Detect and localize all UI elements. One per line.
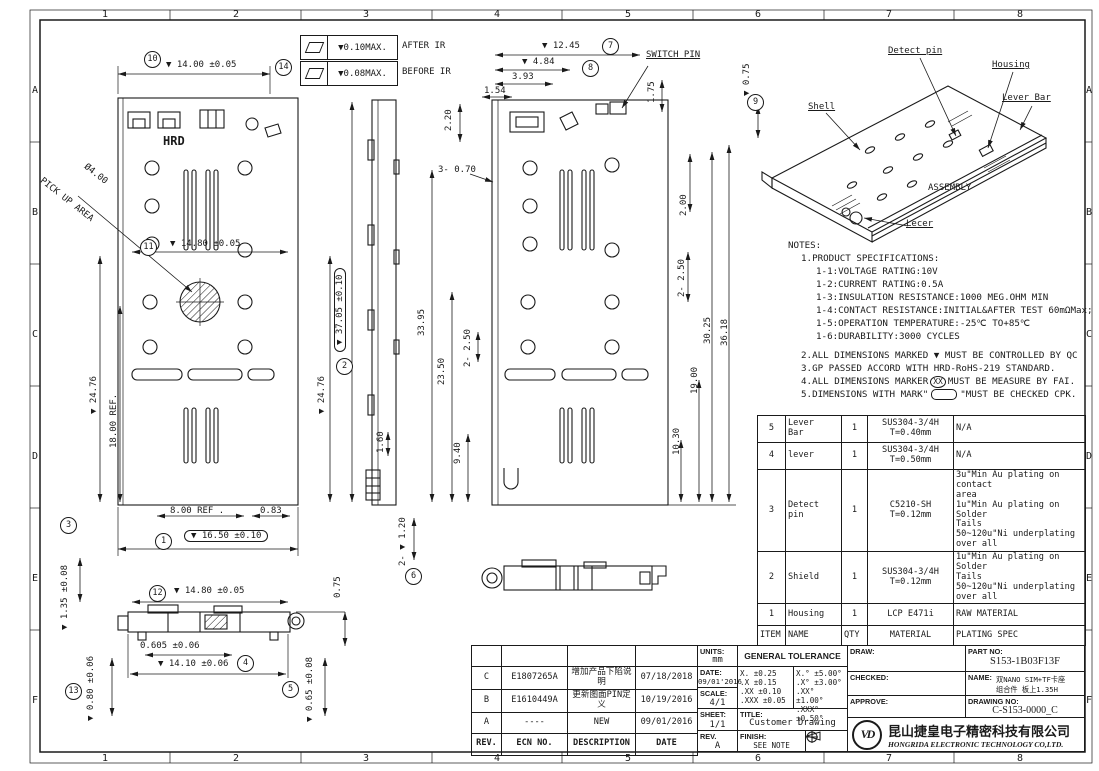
table-row: 2 Shield 1 SUS304-3/4H T=0.12mm 1u"Min A… xyxy=(758,552,1086,604)
qty-cell: 1 xyxy=(842,604,868,626)
dim-30-25: 30.25 xyxy=(703,317,713,344)
dim-2-2-50-left: 2- 2.50 xyxy=(463,329,473,367)
ecn-cell: E1610449A xyxy=(502,689,568,712)
dim-19-00: 19.00 xyxy=(690,367,700,394)
item-cell: 4 xyxy=(758,443,786,470)
balloon-3: 3 xyxy=(60,517,77,534)
header-cell: DATE xyxy=(636,733,698,755)
company-name-en: HONGRIDA ELECTRONIC TECHNOLOGY CO,LTD. xyxy=(888,740,1070,749)
units-value: mm xyxy=(698,655,737,665)
col-label: 1 xyxy=(102,754,108,764)
dim-1-60: 1.60 xyxy=(376,431,386,453)
note-line: 1-6:DURABILITY:3000 CYCLES xyxy=(816,331,960,342)
company-logo: VD xyxy=(852,720,882,750)
desc-cell: 更新图面PIN定义 xyxy=(568,689,636,712)
circled-xx: XX xyxy=(930,376,946,388)
assembly-caption: ASSEMBLY xyxy=(928,183,971,193)
dim-18-00-ref: 18.00 REF. xyxy=(109,394,119,448)
row-label: E xyxy=(1086,574,1092,584)
table-row: 1 Housing 1 LCP E471i RAW MATERIAL xyxy=(758,604,1086,626)
checked-label: CHECKED: xyxy=(850,673,889,682)
parallelism-icon xyxy=(301,36,328,59)
parts-table: 5 Lever Bar 1 SUS304-3/4H T=0.40mm N/A 4… xyxy=(757,415,1086,646)
sheet-label: SHEET: xyxy=(700,710,726,719)
dim-8-00-ref: 8.00 REF . xyxy=(170,506,224,516)
note5-prefix: 5.DIMENSIONS WITH MARK" xyxy=(801,389,928,400)
dim-1-75: 1.75 xyxy=(647,81,657,103)
note-line: 1-2:CURRENT RATING:0.5A xyxy=(816,279,943,290)
side-view xyxy=(118,605,304,640)
top-view xyxy=(118,98,298,505)
qty-cell: 1 xyxy=(842,552,868,604)
date-cell: 10/19/2016 xyxy=(636,689,698,712)
table-row: 4 lever 1 SUS304-3/4H T=0.50mm N/A xyxy=(758,443,1086,470)
dim-10-30: 10.30 xyxy=(672,428,682,455)
shell-label: Shell xyxy=(808,102,835,112)
title-block: UNITS: mm DATE: 09/01'2016 SCALE: 4/1 SH… xyxy=(697,645,1085,752)
row-label: D xyxy=(32,452,38,462)
dim-36-18: 36.18 xyxy=(720,319,730,346)
general-tolerance-header: GENERAL TOLERANCE xyxy=(737,645,848,667)
housing-label: Housing xyxy=(992,60,1030,70)
flatness-callout-after: ▼0.10MAX. xyxy=(300,35,398,60)
note4-suffix: MUST BE MEASURE BY FAI. xyxy=(948,376,1075,387)
material-cell: LCP E471i xyxy=(868,604,954,626)
balloon-4: 4 xyxy=(237,655,254,672)
balloon-6: 6 xyxy=(405,568,422,585)
dim-16-50: ▼ 16.50 ±0.10 xyxy=(184,530,268,542)
date-cell: 07/18/2018 xyxy=(636,667,698,690)
note-line: 1-3:INSULATION RESISTANCE:1000 MEG.OHM M… xyxy=(816,292,1048,303)
name-cell: Housing xyxy=(786,604,842,626)
dim-0-83: 0.83 xyxy=(260,506,282,516)
desc-cell: NEW xyxy=(568,712,636,733)
name-cell: lever xyxy=(786,443,842,470)
header-cell: QTY xyxy=(842,626,868,646)
company-name-cn: 昆山捷皇电子精密科技有限公司 xyxy=(888,721,1070,740)
name-value: 双NANO SIM+TF卡座 组合件 板上1.35H xyxy=(996,675,1082,695)
dim-2-2-50-right: 2- 2.50 xyxy=(677,259,687,297)
date-cell: DATE: 09/01'2016 xyxy=(697,666,738,688)
dim-14-10: ▼ 14.10 ±0.06 xyxy=(158,659,228,669)
bottom-view xyxy=(492,100,668,505)
dim-12-45: ▼ 12.45 xyxy=(542,41,580,51)
balloon-8: 8 xyxy=(582,60,599,77)
col-label: 5 xyxy=(625,754,631,764)
approve-label: APPROVE: xyxy=(850,697,888,706)
rev-row: B E1610449A 更新图面PIN定义 10/19/2016 xyxy=(472,689,698,712)
row-label: A xyxy=(32,86,38,96)
switch-pin-label: SWITCH PIN xyxy=(646,50,700,60)
row-label: F xyxy=(1086,696,1092,706)
header-cell: PLATING SPEC xyxy=(954,626,1086,646)
dim-0-80: ▼ 0.80 ±0.06 xyxy=(86,656,96,721)
row-label: E xyxy=(32,574,38,584)
header-cell: ECN NO. xyxy=(502,733,568,755)
checked-cell: CHECKED: xyxy=(847,671,966,696)
detect-pin-label: Detect pin xyxy=(888,46,942,56)
qty-cell: 1 xyxy=(842,470,868,552)
note4-prefix: 4.ALL DIMENSIONS MARKER xyxy=(801,376,928,387)
material-cell: SUS304-3/4H T=0.40mm xyxy=(868,416,954,443)
dim-0-65: ▼ 0.65 ±0.08 xyxy=(305,657,315,722)
col-label: 7 xyxy=(886,10,892,20)
name-cell: NAME: 双NANO SIM+TF卡座 组合件 板上1.35H xyxy=(965,671,1085,696)
row-label: A xyxy=(1086,86,1092,96)
rev-cell: C xyxy=(472,667,502,690)
dim-0-75-bot: 0.75 xyxy=(333,576,343,598)
col-label: 4 xyxy=(494,10,500,20)
draw-cell: DRAW: xyxy=(847,645,966,672)
name-cell: Detect pin xyxy=(786,470,842,552)
desc-cell: 增加产品下陷说明 xyxy=(568,667,636,690)
dim-24-76-mid: ▼ 24.76 xyxy=(317,376,327,414)
lecer-label: Lecer xyxy=(906,219,933,229)
note-line: 5.DIMENSIONS WITH MARK""MUST BE CHECKED … xyxy=(801,389,1076,400)
dim-37-05: ▼ 37.05 ±0.10 xyxy=(334,268,346,352)
name-label: NAME: xyxy=(968,673,992,682)
header-cell: MATERIAL xyxy=(868,626,954,646)
part-no-label: PART NO: xyxy=(968,647,1003,656)
balloon-2: 2 xyxy=(336,358,353,375)
row-label: B xyxy=(1086,208,1092,218)
company-cell: VD 昆山捷皇电子精密科技有限公司 HONGRIDA ELECTRONIC TE… xyxy=(847,717,1085,752)
flatness-note-after: AFTER IR xyxy=(402,41,445,51)
dim-14-00: ▼ 14.00 ±0.05 xyxy=(166,60,236,70)
plating-cell: N/A xyxy=(954,443,1086,470)
engineering-drawing-sheet: 1 2 3 4 5 6 7 8 1 2 3 4 5 6 7 8 A B C D … xyxy=(0,0,1099,771)
balloon-10: 10 xyxy=(144,51,161,68)
projection-cell xyxy=(805,730,848,752)
title-cell: TITLE: Customer Drawing xyxy=(737,708,848,731)
scale-cell: SCALE: 4/1 xyxy=(697,687,738,709)
dim-4-84: ▼ 4.84 xyxy=(522,57,555,67)
table-row: 5 Lever Bar 1 SUS304-3/4H T=0.40mm N/A xyxy=(758,416,1086,443)
name-cell: Shield xyxy=(786,552,842,604)
tolerance-angular-cell: X.° ±5.00° .X° ±3.00° .XX° ±1.00° .XXX° … xyxy=(793,666,848,709)
lever-bar-label: Lever Bar xyxy=(1002,93,1051,103)
item-cell: 5 xyxy=(758,416,786,443)
rev-cell: B xyxy=(472,689,502,712)
col-label: 3 xyxy=(363,10,369,20)
note-line: 1-1:VOLTAGE RATING:10V xyxy=(816,266,938,277)
note-line: 2.ALL DIMENSIONS MARKED ▼ MUST BE CONTRO… xyxy=(801,350,1078,361)
dim-3-93: 3.93 xyxy=(512,72,534,82)
dim-33-95: 33.95 xyxy=(417,309,427,336)
projection-cone-icon xyxy=(806,731,822,741)
dim-1-35: ▼ 1.35 ±0.08 xyxy=(60,565,70,630)
title-value: Customer Drawing xyxy=(738,718,847,728)
rev-cell: REV. A xyxy=(697,730,738,752)
flatness-value: ▼0.08MAX. xyxy=(328,62,397,85)
finish-cell: FINISH: SEE NOTE xyxy=(737,730,806,752)
row-label: B xyxy=(32,208,38,218)
material-cell: SUS304-3/4H T=0.50mm xyxy=(868,443,954,470)
draw-label: DRAW: xyxy=(850,647,875,656)
name-cell: Lever Bar xyxy=(786,416,842,443)
header-cell: NAME xyxy=(786,626,842,646)
parts-header-row: ITEM NAME QTY MATERIAL PLATING SPEC xyxy=(758,626,1086,646)
rev-cell: A xyxy=(472,712,502,733)
balloon-5: 5 xyxy=(282,681,299,698)
revision-table: C E1807265A 增加产品下陷说明 07/18/2018 B E16104… xyxy=(471,645,698,756)
col-label: 6 xyxy=(755,10,761,20)
date-label: DATE: xyxy=(700,668,722,677)
material-cell: SUS304-3/4H T=0.12mm xyxy=(868,552,954,604)
part-no-value: S153-1B03F13F xyxy=(966,656,1084,667)
side-view-small xyxy=(482,560,666,590)
col-label: 5 xyxy=(625,10,631,20)
col-label: 8 xyxy=(1017,754,1023,764)
row-label: C xyxy=(1086,330,1092,340)
dim-24-76-left: ▼ 24.76 xyxy=(89,376,99,414)
sheet-cell: SHEET: 1/1 xyxy=(697,708,738,731)
dim-9-40: 9.40 xyxy=(453,442,463,464)
hrd-logo-text: HRD xyxy=(163,136,185,146)
balloon-14: 14 xyxy=(275,59,292,76)
note5-suffix: "MUST BE CHECKED CPK. xyxy=(960,389,1076,400)
dim-1-54: 1.54 xyxy=(484,86,506,96)
item-cell: 3 xyxy=(758,470,786,552)
balloon-13: 13 xyxy=(65,683,82,700)
header-cell: ITEM xyxy=(758,626,786,646)
plating-cell: RAW MATERIAL xyxy=(954,604,1086,626)
header-cell: REV. xyxy=(472,733,502,755)
drawing-no-value: C-S153-0000_C xyxy=(966,705,1084,716)
rev-header-row: REV. ECN NO. DESCRIPTION DATE xyxy=(472,733,698,755)
material-cell: C5210-SH T=0.12mm xyxy=(868,470,954,552)
col-label: 8 xyxy=(1017,10,1023,20)
balloon-11: 11 xyxy=(140,239,157,256)
dim-3-0-70: 3- 0.70 xyxy=(438,165,476,175)
flatness-callout-before: ▼0.08MAX. xyxy=(300,61,398,86)
flatness-note-before: BEFORE IR xyxy=(402,67,451,77)
approve-cell: APPROVE: xyxy=(847,695,966,718)
units-cell: UNITS: mm xyxy=(697,645,738,667)
note-line: 1.PRODUCT SPECIFICATIONS: xyxy=(801,253,939,264)
date-value: 09/01'2016 xyxy=(698,677,737,686)
dim-0-605: 0.605 ±0.06 xyxy=(140,641,200,651)
row-label: C xyxy=(32,330,38,340)
ecn-cell: E1807265A xyxy=(502,667,568,690)
dim-14-80-bot: ▼ 14.80 ±0.05 xyxy=(174,586,244,596)
flatness-value: ▼0.10MAX. xyxy=(328,36,397,59)
col-label: 3 xyxy=(363,754,369,764)
qty-cell: 1 xyxy=(842,443,868,470)
col-label: 6 xyxy=(755,754,761,764)
col-label: 4 xyxy=(494,754,500,764)
drawing-no-cell: DRAWING NO: C-S153-0000_C xyxy=(965,695,1085,718)
note-line: 4.ALL DIMENSIONS MARKERXXMUST BE MEASURE… xyxy=(801,376,1075,388)
finish-label: FINISH: xyxy=(740,732,766,741)
col-label: 7 xyxy=(886,754,892,764)
row-label: F xyxy=(32,696,38,706)
general-tolerance-label: GENERAL TOLERANCE xyxy=(744,651,841,661)
dim-2-1-20: 2- ▼ 1.20 xyxy=(398,517,408,566)
plating-cell: 3u"Min Au plating on contact area 1u"Min… xyxy=(954,470,1086,552)
rev-row: C E1807265A 增加产品下陷说明 07/18/2018 xyxy=(472,667,698,690)
rev-label: REV. xyxy=(700,732,716,741)
balloon-12: 12 xyxy=(149,585,166,602)
note-line: 3.GP PASSED ACCORD WITH HRD-RoHS-219 STA… xyxy=(801,363,1055,374)
sheet-value: 1/1 xyxy=(698,720,737,730)
header-cell: DESCRIPTION xyxy=(568,733,636,755)
dim-2-00: 2.00 xyxy=(679,194,689,216)
col-label: 1 xyxy=(102,10,108,20)
scale-label: SCALE: xyxy=(700,689,727,698)
ecn-cell: ---- xyxy=(502,712,568,733)
note-line: 1-5:OPERATION TEMPERATURE:-25℃ TO+85℃ xyxy=(816,318,1030,329)
balloon-1: 1 xyxy=(155,533,172,550)
item-cell: 1 xyxy=(758,604,786,626)
item-cell: 2 xyxy=(758,552,786,604)
rev-row: A ---- NEW 09/01/2016 xyxy=(472,712,698,733)
row-label: D xyxy=(1086,452,1092,462)
balloon-7: 7 xyxy=(602,38,619,55)
dim-2-20: 2.20 xyxy=(444,109,454,131)
dim-0-75-top: ▼ 0.75 xyxy=(742,63,752,96)
plating-cell: 1u"Min Au plating on Solder Tails 50~120… xyxy=(954,552,1086,604)
dim-14-80-top: ▼ 14.80 ±0.05 xyxy=(170,239,240,249)
plating-cell: N/A xyxy=(954,416,1086,443)
finish-value: SEE NOTE xyxy=(738,741,805,750)
col-label: 2 xyxy=(233,754,239,764)
tolerance-linear-cell: X. ±0.25 .X ±0.15 .XX ±0.10 .XXX ±0.05 xyxy=(737,666,794,709)
cpk-oval-icon xyxy=(931,389,957,400)
dim-23-50: 23.50 xyxy=(437,358,447,385)
qty-cell: 1 xyxy=(842,416,868,443)
balloon-9: 9 xyxy=(747,94,764,111)
note-line: 1-4:CONTACT RESISTANCE:INITIAL&AFTER TES… xyxy=(816,305,1093,316)
rev-empty-row xyxy=(472,646,698,667)
parallelism-icon xyxy=(301,62,328,85)
scale-value: 4/1 xyxy=(698,698,737,708)
date-cell: 09/01/2016 xyxy=(636,712,698,733)
notes-title: NOTES: xyxy=(788,240,821,251)
rev-value: A xyxy=(698,741,737,751)
table-row: 3 Detect pin 1 C5210-SH T=0.12mm 3u"Min … xyxy=(758,470,1086,552)
col-label: 2 xyxy=(233,10,239,20)
part-no-cell: PART NO: S153-1B03F13F xyxy=(965,645,1085,672)
assembly-view xyxy=(762,86,1046,242)
